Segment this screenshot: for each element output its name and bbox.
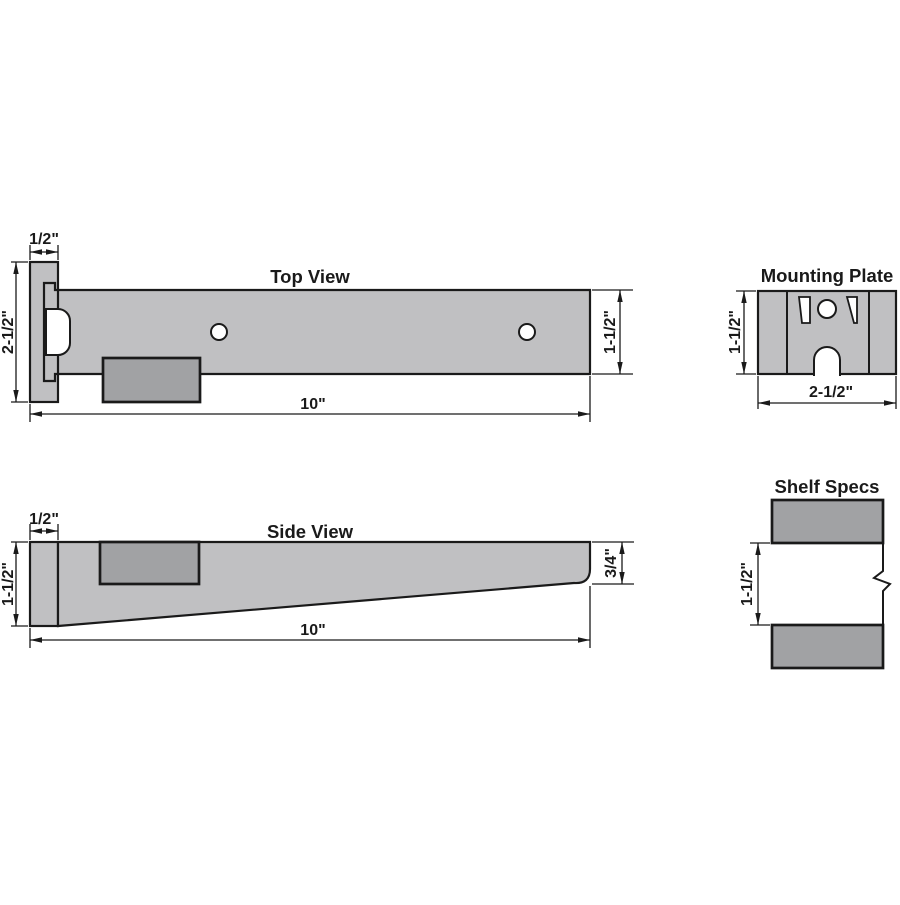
top-view-overall-depth-dim: 2-1/2" — [0, 310, 17, 354]
break-line — [874, 543, 890, 625]
mounting-plate-center-hole — [818, 300, 836, 318]
shelf-specs-title: Shelf Specs — [775, 476, 880, 497]
mounting-plate-width-dim: 2-1/2" — [809, 384, 853, 401]
top-view-keyhole-slot — [46, 309, 70, 355]
bracket-technical-drawing: Top View 1/2" 2-1/2" 1-1/2" 10" Side Vie… — [0, 0, 900, 900]
side-view-height-dim: 1-1/2" — [0, 562, 17, 606]
top-view: Top View 1/2" 2-1/2" 1-1/2" 10" — [0, 231, 633, 422]
side-view-plate-width-dim: 1/2" — [29, 511, 59, 528]
side-view-wall-plate — [30, 542, 58, 626]
mounting-plate-detail: Mounting Plate 1-1/2" 2-1/2" — [727, 265, 896, 409]
mounting-plate-u-notch — [814, 347, 840, 376]
side-view-tip-height-dim: 3/4" — [603, 548, 620, 578]
top-view-locking-block — [103, 358, 200, 402]
shelf-specs-top-board — [772, 500, 883, 543]
mounting-plate-slot-left — [799, 297, 810, 323]
top-view-screw-hole-left — [211, 324, 227, 340]
drawing-sheet: Top View 1/2" 2-1/2" 1-1/2" 10" Side Vie… — [0, 0, 900, 900]
top-view-length-dim: 10" — [300, 396, 325, 413]
side-view-length-dim: 10" — [300, 622, 325, 639]
side-view-locking-block — [100, 542, 199, 584]
top-view-screw-hole-right — [519, 324, 535, 340]
top-view-arm-depth-dim: 1-1/2" — [602, 310, 619, 354]
side-view: Side View 1/2" 1-1/2" 3/4" 10" — [0, 511, 634, 648]
side-view-title: Side View — [267, 521, 354, 542]
shelf-specs-slot-height-dim: 1-1/2" — [739, 562, 756, 606]
shelf-specs-detail: Shelf Specs 1-1/2" — [739, 476, 890, 668]
mounting-plate-title: Mounting Plate — [761, 265, 894, 286]
shelf-specs-bottom-board — [772, 625, 883, 668]
mounting-plate-height-dim: 1-1/2" — [727, 310, 744, 354]
top-view-title: Top View — [270, 266, 350, 287]
top-view-plate-width-dim: 1/2" — [29, 231, 59, 248]
